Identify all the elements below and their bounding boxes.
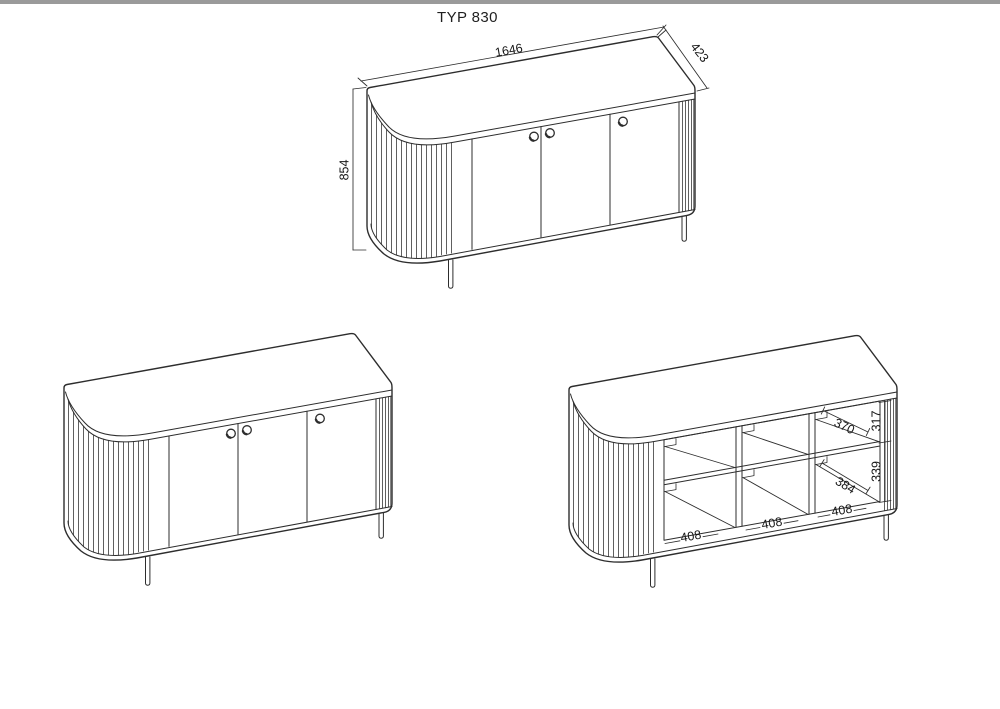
- drawing-sheet: TYP 830 1646 423 854 370 317 384 339 408…: [0, 0, 1000, 709]
- cabinet-leg: [449, 260, 453, 288]
- cabinet-leg: [884, 512, 888, 540]
- view-perspective-front: [64, 334, 392, 586]
- cabinet-leg: [146, 557, 150, 585]
- view-perspective-dimensioned: [367, 37, 695, 289]
- view-interior-compartments: [569, 336, 897, 588]
- dim-label-width: 1646: [494, 41, 524, 60]
- technical-drawing: 1646 423 854 370 317 384 339 408 408 408: [0, 0, 1000, 709]
- dim-ext: [353, 88, 366, 90]
- dim-label-bottom-shelf-height: 339: [869, 461, 883, 482]
- dim-ext: [697, 88, 709, 91]
- dim-ext: [658, 30, 666, 37]
- dim-label-height: 854: [337, 160, 351, 181]
- dim-label-top-shelf-height: 317: [869, 411, 883, 432]
- cabinet-leg: [682, 213, 686, 241]
- cabinet-leg: [379, 510, 383, 538]
- dim-label-depth: 423: [688, 40, 712, 65]
- dim-ext: [358, 78, 367, 86]
- cabinet-leg: [651, 559, 655, 587]
